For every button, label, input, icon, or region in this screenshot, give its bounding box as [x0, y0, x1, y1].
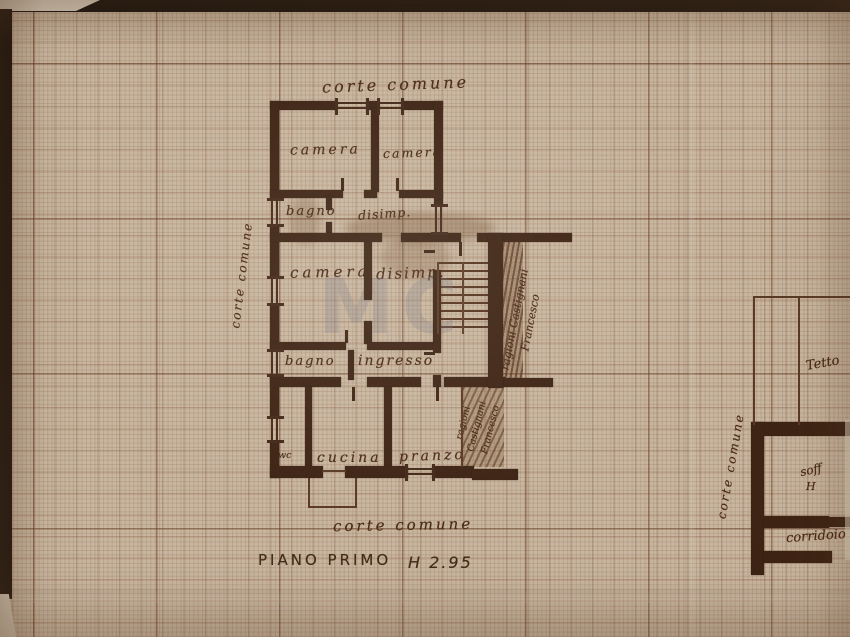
thin-line — [753, 297, 755, 425]
window-symbol — [271, 418, 278, 441]
wall-segment — [348, 350, 354, 380]
wall-segment — [433, 375, 441, 387]
court-label-bottom: corte comune — [333, 515, 473, 535]
door-marker — [459, 242, 462, 256]
thin-line — [462, 262, 464, 334]
door-marker — [345, 330, 348, 343]
window-symbol — [337, 102, 367, 109]
wall-segment — [472, 469, 518, 480]
thin-line — [437, 262, 439, 334]
wall-segment — [752, 422, 850, 436]
window-symbol — [407, 468, 433, 475]
court-label-right: corte comune — [714, 412, 746, 520]
door-marker — [424, 352, 435, 355]
label-soffitta: soff — [799, 461, 823, 479]
door-marker — [436, 387, 439, 401]
room-label-bagno-lower: bagno — [285, 354, 336, 369]
balcony-outline — [308, 478, 357, 508]
thin-line — [798, 297, 800, 425]
wall-segment — [270, 466, 323, 478]
wall-segment — [432, 466, 474, 478]
room-label-cucina: cucina — [317, 450, 382, 466]
wall-segment — [270, 101, 338, 110]
floor-plan-drawing: corte comune camera camera bagno disimp.… — [0, 0, 850, 637]
court-label-left: corte comune — [228, 221, 255, 329]
wall-segment — [371, 108, 379, 192]
door-marker — [341, 178, 344, 191]
room-label-camera-top-left: camera — [290, 141, 361, 158]
floor-plan-sheet: corte comune camera camera bagno disimp.… — [0, 0, 850, 637]
wall-segment — [305, 387, 312, 468]
wall-segment — [367, 377, 421, 387]
window-symbol — [271, 278, 278, 304]
wall-segment — [270, 101, 279, 200]
wall-segment — [751, 422, 764, 575]
thin-line — [461, 387, 463, 467]
wall-segment — [764, 551, 832, 563]
wall-segment — [364, 190, 377, 198]
wall-segment — [270, 233, 382, 242]
wall-segment — [764, 516, 829, 528]
door-marker — [352, 387, 355, 401]
window-symbol — [435, 206, 442, 233]
window-symbol — [271, 200, 278, 225]
label-soffitta-height: H — [806, 480, 816, 493]
wall-segment — [367, 342, 433, 350]
floor-title: PIANO PRIMO — [258, 551, 391, 569]
wall-segment — [270, 190, 343, 198]
label-corridoio: corridoio — [786, 527, 847, 546]
thin-line — [322, 470, 346, 472]
floor-height-note: H 2.95 — [408, 553, 473, 572]
room-label-wc: wc — [278, 450, 291, 461]
wall-segment — [504, 378, 553, 387]
wall-segment — [345, 466, 408, 478]
room-label-ingresso: ingresso — [358, 353, 434, 369]
wall-segment — [384, 387, 392, 468]
court-label-top: corte comune — [322, 72, 470, 96]
wall-segment — [488, 233, 503, 388]
door-marker — [396, 178, 399, 191]
window-symbol — [271, 351, 278, 375]
wall-segment — [270, 377, 341, 387]
wall-segment — [326, 196, 332, 210]
wall-segment — [364, 242, 372, 300]
wall-segment — [399, 190, 443, 198]
door-marker — [424, 250, 435, 253]
thin-line — [753, 296, 850, 298]
label-tetto: Tetto — [805, 353, 841, 374]
window-symbol — [379, 102, 402, 109]
agency-watermark: MC — [318, 262, 465, 351]
wall-segment — [828, 517, 850, 527]
wall-segment — [364, 321, 372, 344]
